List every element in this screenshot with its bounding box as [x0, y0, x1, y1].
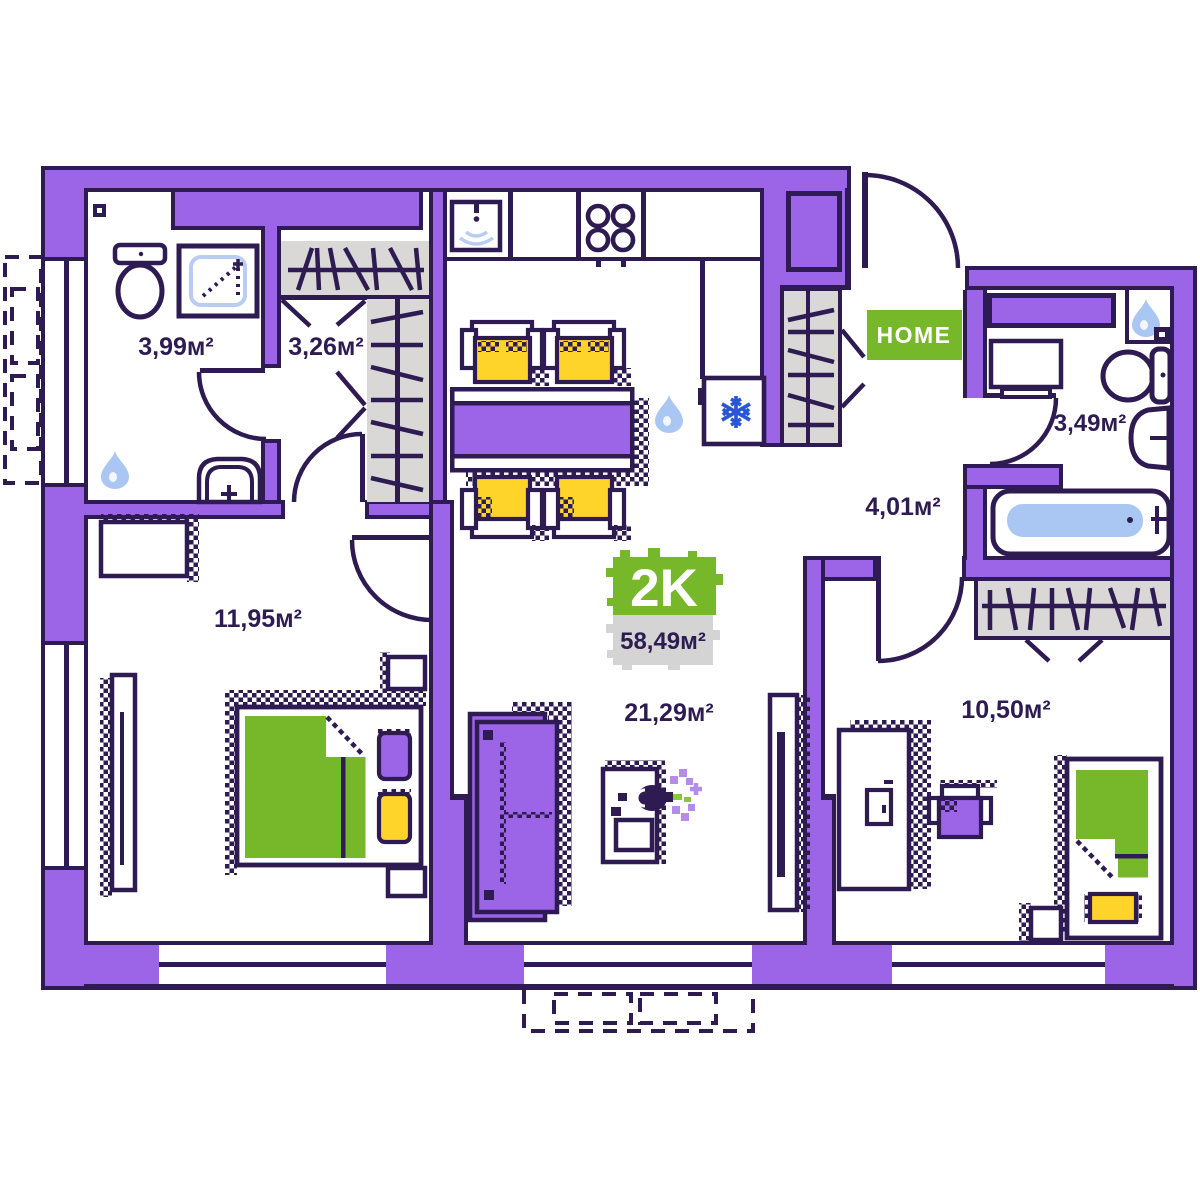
svg-text:58,49м²: 58,49м² [620, 628, 706, 655]
svg-text:2K: 2K [630, 559, 698, 618]
svg-text:3,26м²: 3,26м² [288, 333, 363, 361]
svg-text:11,95м²: 11,95м² [214, 605, 302, 633]
svg-text:10,50м²: 10,50м² [961, 696, 1050, 724]
svg-text:4,01м²: 4,01м² [865, 493, 940, 521]
svg-text:3,99м²: 3,99м² [138, 333, 213, 361]
svg-text:HOME: HOME [877, 322, 952, 348]
svg-text:21,29м²: 21,29м² [624, 699, 713, 727]
svg-text:3,49м²: 3,49м² [1054, 410, 1126, 437]
